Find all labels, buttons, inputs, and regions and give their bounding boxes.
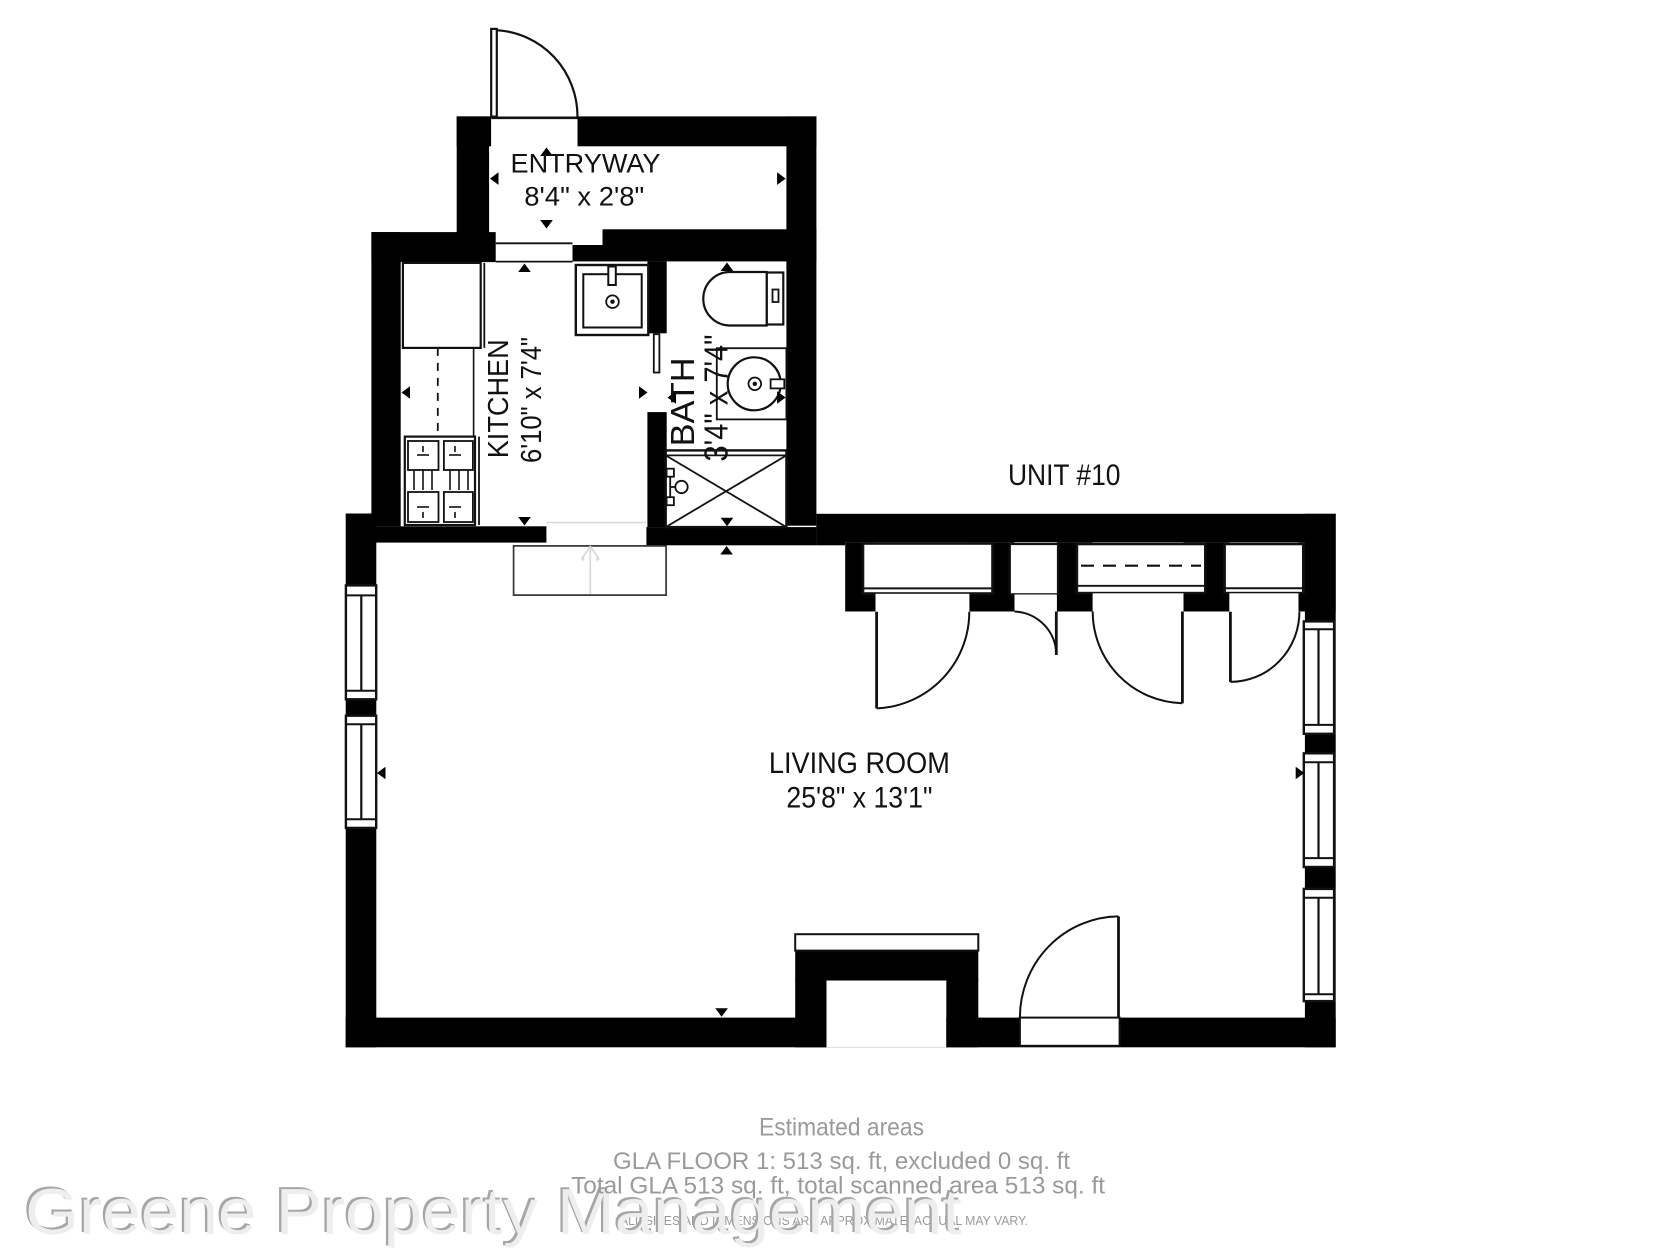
svg-text:25'8" x 13'1": 25'8" x 13'1" xyxy=(786,782,932,815)
svg-text:Estimated areas: Estimated areas xyxy=(759,1114,924,1142)
svg-text:3'4" x 7'4": 3'4" x 7'4" xyxy=(698,335,735,462)
svg-text:6'10" x 7'4": 6'10" x 7'4" xyxy=(516,337,548,463)
svg-text:8'4" x 2'8": 8'4" x 2'8" xyxy=(524,182,644,212)
svg-text:ENTRYWAY: ENTRYWAY xyxy=(511,148,661,178)
svg-text:Total GLA 513 sq. ft, total sc: Total GLA 513 sq. ft, total scanned area… xyxy=(571,1173,1105,1200)
svg-text:BATH: BATH xyxy=(664,357,701,446)
svg-text:GLA FLOOR 1: 513 sq. ft, exclu: GLA FLOOR 1: 513 sq. ft, excluded 0 sq. … xyxy=(613,1148,1070,1175)
svg-text:LIVING ROOM: LIVING ROOM xyxy=(769,747,950,780)
svg-text:UNIT #10: UNIT #10 xyxy=(1008,459,1121,492)
svg-text:KITCHEN: KITCHEN xyxy=(483,339,515,458)
